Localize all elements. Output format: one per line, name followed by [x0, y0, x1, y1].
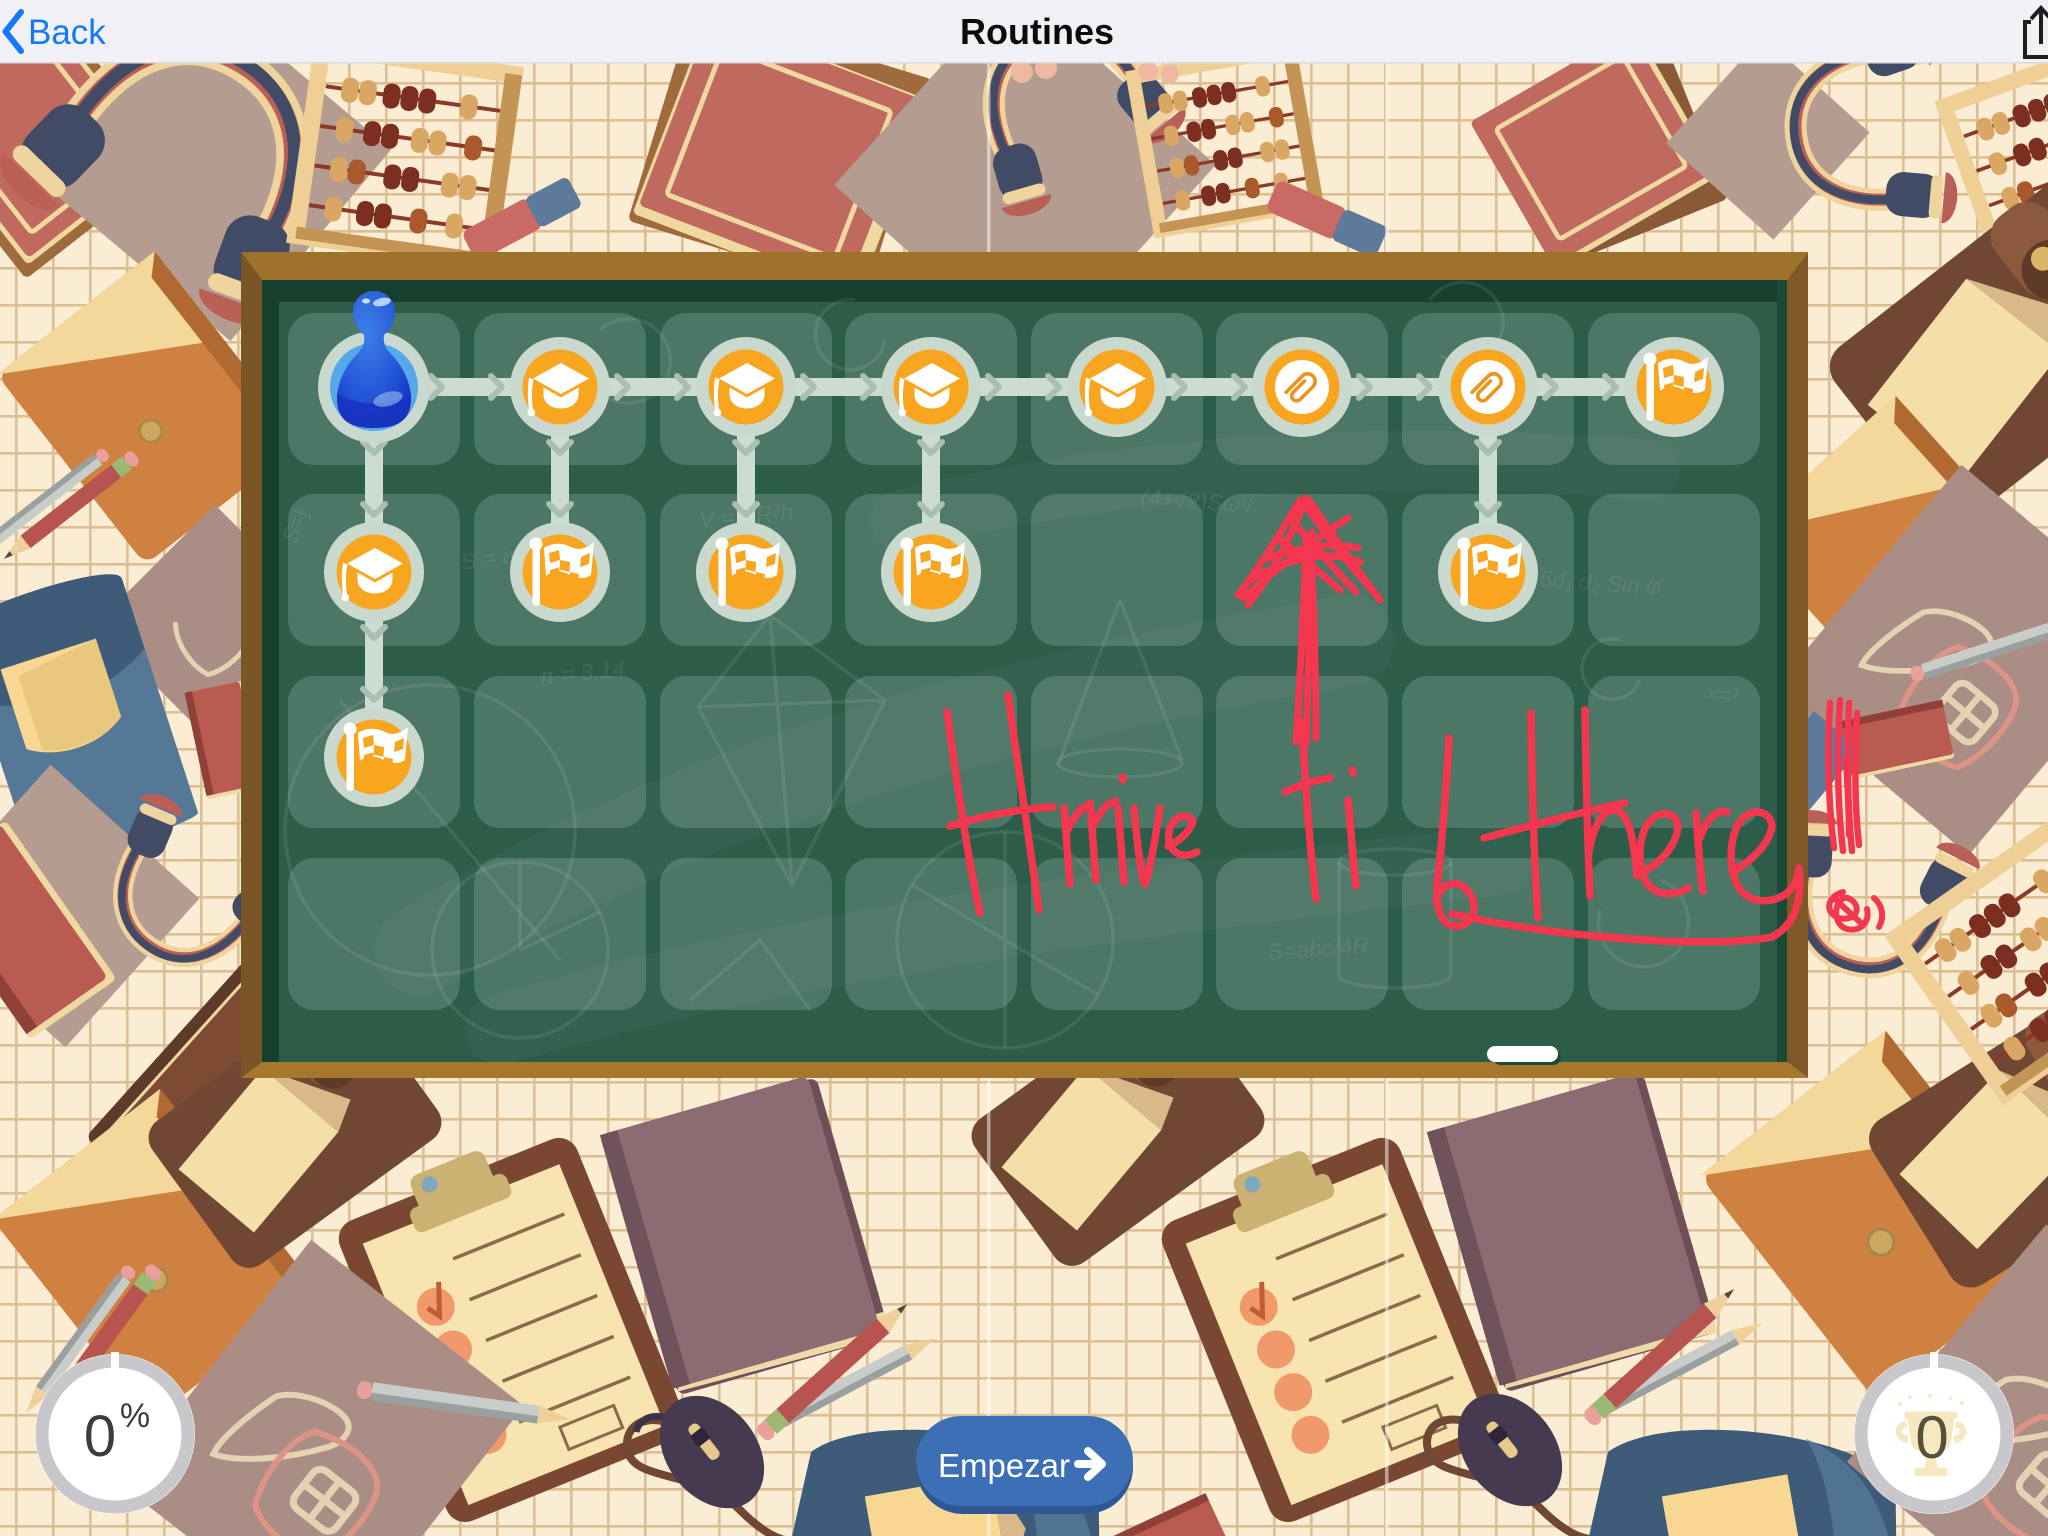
svg-text:%: % — [120, 1397, 150, 1435]
svg-text:Routines: Routines — [960, 11, 1114, 52]
svg-text:0: 0 — [1915, 1404, 1948, 1471]
svg-text:Back: Back — [28, 13, 106, 52]
svg-text:Empezar: Empezar — [938, 1447, 1070, 1484]
svg-text:0: 0 — [84, 1404, 116, 1469]
